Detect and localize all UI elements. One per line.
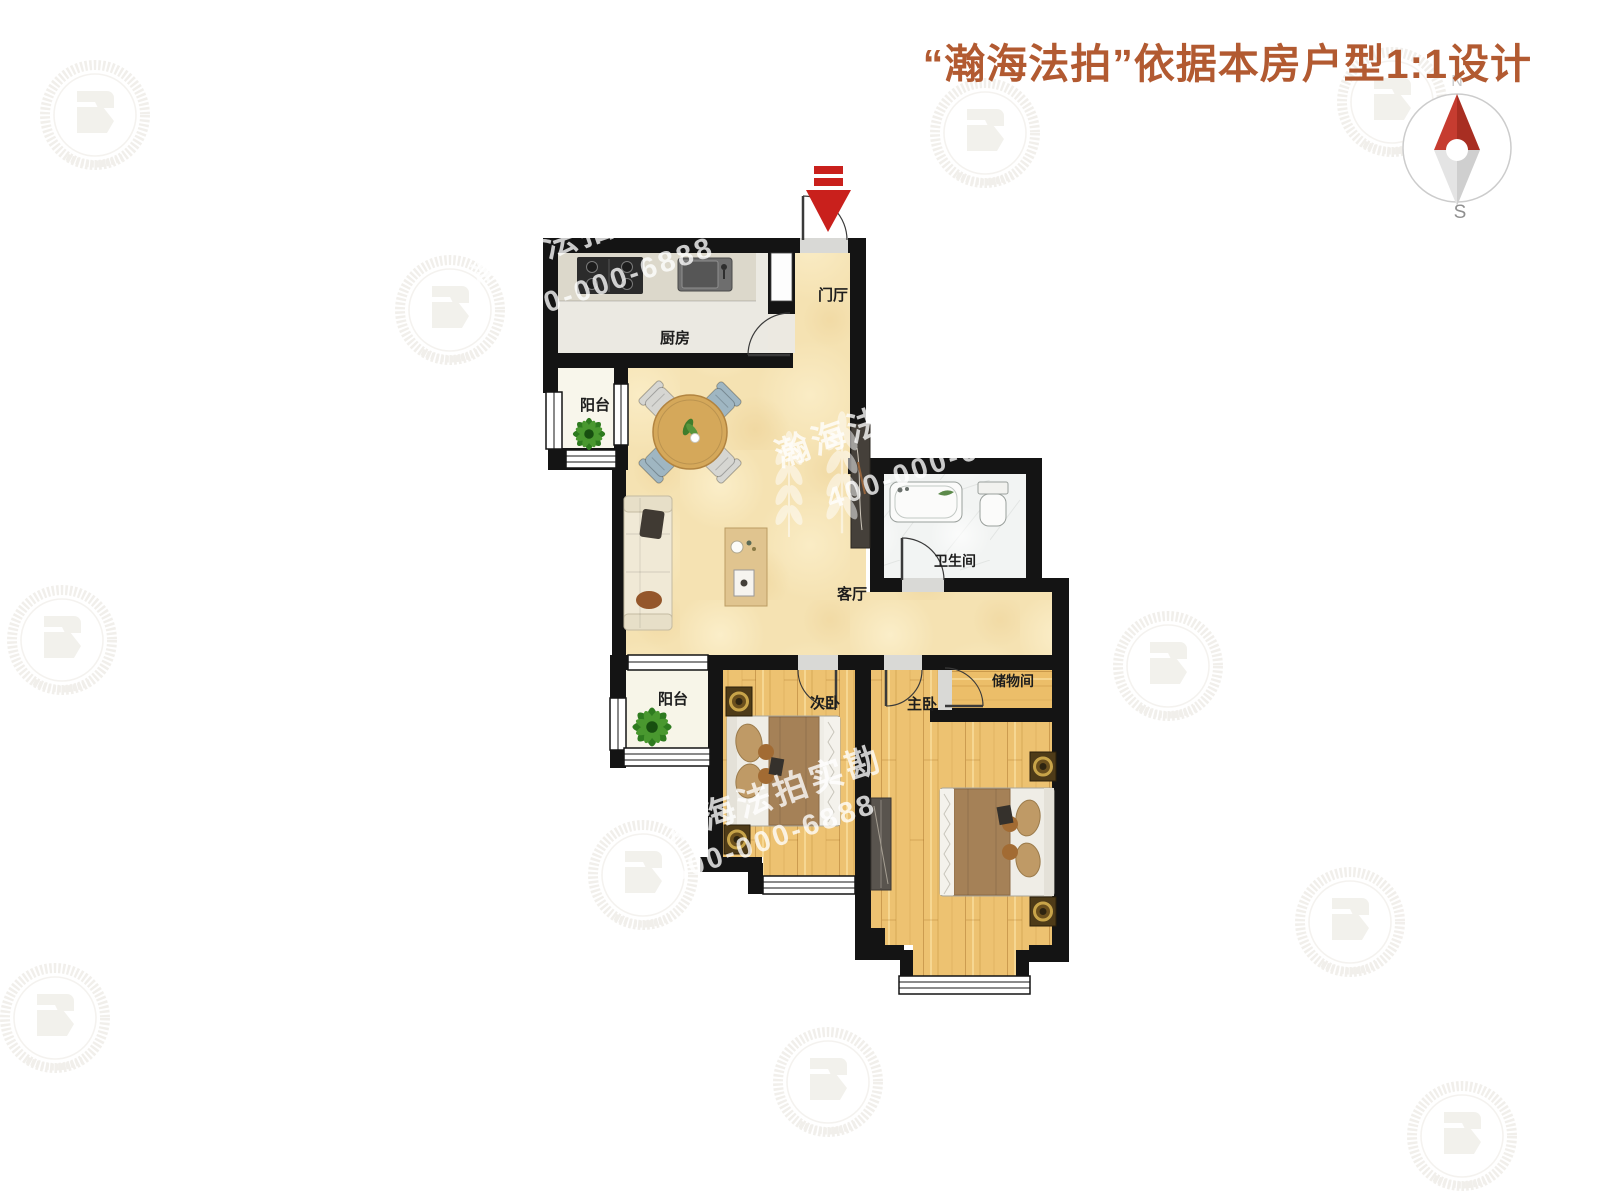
- lower-balcony-left-window: [610, 698, 626, 750]
- label-second-bedroom: 次卧: [810, 694, 840, 712]
- nightstand: [1030, 752, 1056, 781]
- master-bedroom-bed: [940, 788, 1054, 896]
- label-storage-room: 储物间: [991, 673, 1034, 689]
- wall-segment: [543, 355, 558, 393]
- label-living-room: 客厅: [836, 585, 867, 603]
- label-entry: 门厅: [818, 286, 848, 304]
- floorplan-drawing: 厨房 门厅 阳台 客厅 卫生间 阳台 次卧 主卧 储物间 瀚海法拍实勘 400-…: [0, 0, 1600, 1200]
- brand-logo-watermark-icon: [1300, 872, 1400, 972]
- compass-south-label: S: [1454, 202, 1467, 223]
- wall-segment: [614, 353, 628, 386]
- page-title: “瀚海法拍”依据本房户型1:1设计: [923, 30, 1532, 90]
- label-bathroom: 卫生间: [934, 553, 976, 569]
- wall-segment: [944, 578, 1052, 592]
- wall-segment: [1026, 458, 1042, 592]
- label-master-bedroom: 主卧: [907, 695, 937, 713]
- sofa-throw-pillow: [639, 509, 665, 540]
- brand-logo-watermark-icon: [935, 83, 1035, 183]
- wall-segment: [1016, 950, 1029, 978]
- label-lower-balcony: 阳台: [658, 690, 688, 708]
- floorplan-page: 厨房 门厅 阳台 客厅 卫生间 阳台 次卧 主卧 储物间 瀚海法拍实勘 400-…: [0, 0, 1600, 1200]
- sofa-blanket: [636, 591, 662, 609]
- storage-door-sill: [938, 670, 952, 710]
- plant-icon: [573, 418, 605, 450]
- wall-segment: [900, 950, 913, 978]
- wall-segment: [748, 863, 763, 894]
- upper-balcony-inner-window: [614, 384, 628, 445]
- master-bedroom-bay-window: [899, 976, 1030, 994]
- bathroom-door-sill: [902, 578, 944, 592]
- brand-logo-watermark-icon: [5, 968, 105, 1068]
- nightstand: [1030, 897, 1056, 926]
- kitchen-doorway-floor: [768, 314, 795, 353]
- brand-logo-watermark-icon: [45, 65, 145, 165]
- second-bedroom-window: [763, 876, 855, 894]
- label-upper-balcony: 阳台: [580, 396, 610, 414]
- master-bedroom-door-sill: [884, 655, 922, 670]
- coffee-table: [725, 528, 767, 606]
- brand-logo-watermark-icon: [12, 590, 112, 690]
- living-to-balcony-window: [628, 655, 708, 670]
- dining-set: [638, 380, 743, 485]
- upper-balcony-left-window: [546, 392, 562, 449]
- nightstand: [726, 687, 752, 716]
- toilet-icon: [978, 482, 1008, 526]
- wall-segment: [855, 945, 904, 960]
- brand-logo-watermark-icon: [778, 1032, 878, 1132]
- compass-hub: [1446, 139, 1468, 161]
- lower-balcony-bottom-window: [624, 748, 710, 766]
- wall-segment: [870, 578, 902, 592]
- label-kitchen: 厨房: [660, 329, 690, 347]
- entry-cabinet: [771, 253, 792, 301]
- wall-segment: [930, 708, 1069, 722]
- sofa: [624, 496, 672, 630]
- brand-logo-watermark-icon: [1412, 1086, 1512, 1186]
- wall-segment: [610, 655, 626, 700]
- entry-door-sill: [800, 238, 848, 253]
- plant-icon: [632, 707, 671, 746]
- compass: N S: [1403, 73, 1511, 223]
- brand-logo-watermark-icon: [1118, 616, 1218, 716]
- wall-segment: [1029, 945, 1069, 962]
- entry-arrow-icon: [806, 166, 851, 232]
- second-bedroom-door-sill: [798, 655, 838, 670]
- upper-balcony-bottom-window: [566, 450, 616, 468]
